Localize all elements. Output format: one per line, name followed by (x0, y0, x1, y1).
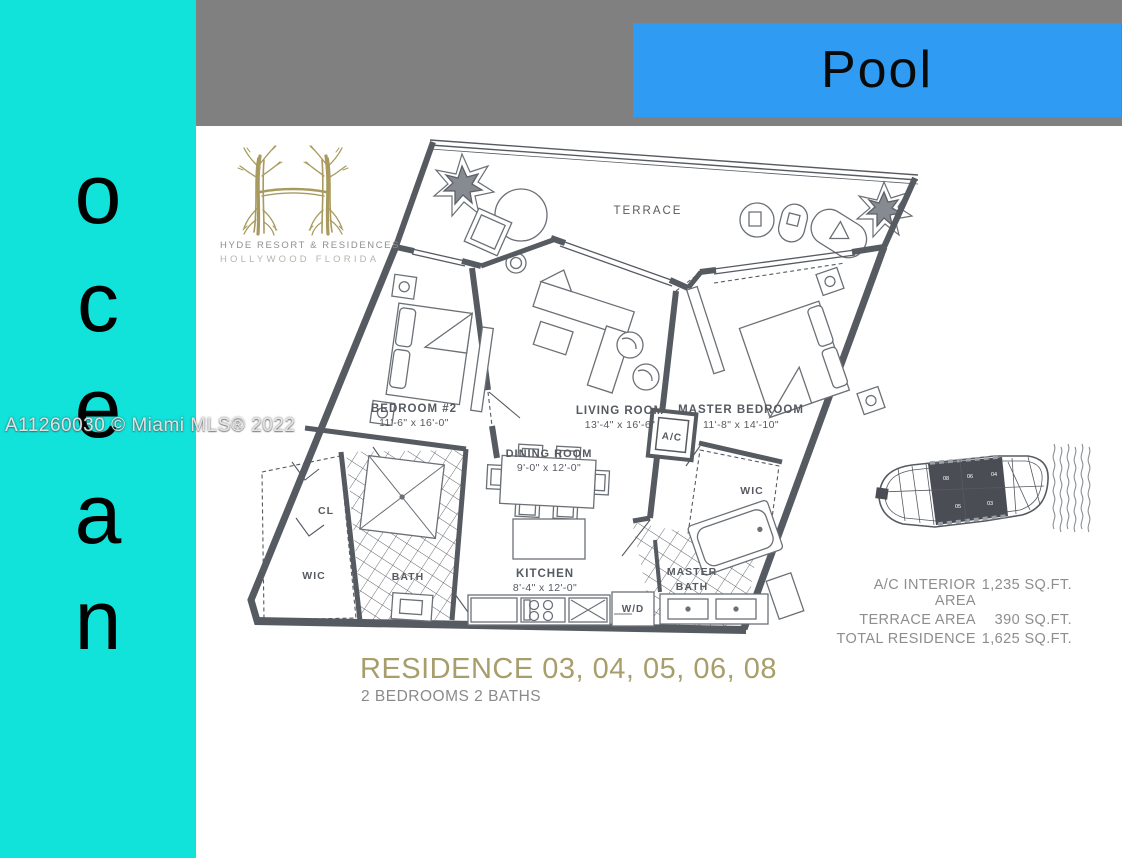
terrace-stool-inner (511, 258, 522, 269)
nightstand-1 (392, 274, 417, 299)
label-master-bath-2: BATH (676, 581, 708, 593)
residence-subtitle: 2 BEDROOMS 2 BATHS (361, 688, 541, 706)
hyde-brand-text: HYDE RESORT & RESIDENCES (220, 240, 370, 251)
label-ac: A/C (661, 431, 682, 444)
area-label: TERRACE AREA (836, 612, 976, 628)
round-chair-1 (617, 332, 643, 358)
coffee-table (533, 321, 573, 354)
key-plan: 08 06 04 05 03 (875, 444, 1090, 532)
label-living: LIVING ROOM (576, 405, 664, 417)
key-plan-highlight (928, 457, 1008, 525)
label-master-bedroom: MASTER BEDROOM (678, 404, 804, 416)
hyde-tree-h-icon (220, 138, 370, 238)
svg-text:05: 05 (955, 504, 961, 510)
pool-header-bar: Pool (196, 0, 1122, 126)
bedroom2-window (412, 249, 465, 266)
area-value: 390 SQ.FT. (976, 612, 1072, 628)
dims-living: 13'-4" x 16'-6" (585, 419, 656, 431)
living-window (560, 241, 674, 286)
pool-label: Pool (821, 40, 933, 100)
toilet (766, 573, 804, 619)
ocean-letter-e: e (0, 366, 196, 450)
residence-title: RESIDENCE 03, 04, 05, 06, 08 (360, 653, 777, 686)
label-wic-left: WIC (302, 570, 325, 582)
bath-strip-top-wall (305, 428, 466, 449)
ocean-letter-c: c (0, 260, 196, 344)
master-console (687, 287, 725, 374)
dims-bedroom2: 11'-6" x 16'-0" (379, 417, 449, 429)
railing-line-1 (430, 140, 918, 175)
ocean-waves-icon (1053, 444, 1090, 532)
railing-line-3 (430, 149, 918, 184)
svg-text:04: 04 (991, 472, 997, 478)
svg-text:08: 08 (943, 476, 949, 482)
plant-star-left-icon (434, 154, 494, 216)
pool-label-box: Pool (633, 23, 1121, 117)
dims-kitchen: 8'-4" x 12'-0" (513, 582, 577, 594)
kitchen-island (513, 519, 585, 559)
label-wd: W/D (622, 604, 644, 615)
label-bath: BATH (392, 571, 424, 583)
door-bedroom2 (489, 392, 520, 418)
door-wic-left (296, 518, 324, 536)
area-table: A/C INTERIOR AREA 1,235 SQ.FT. TERRACE A… (836, 577, 1072, 650)
mls-floorplan-image: { "sidebar": { "word": "ocean", "letters… (0, 0, 1122, 858)
bath-vanity (391, 593, 433, 622)
label-terrace: TERRACE (614, 205, 683, 217)
round-chair-2 (633, 364, 659, 390)
opening-dashed (488, 392, 492, 426)
area-value: 1,235 SQ.FT. (976, 577, 1072, 609)
master-furniture (731, 267, 885, 443)
dims-master-bedroom: 11'-8" x 14'-10" (703, 419, 779, 431)
master-nightstand-2 (857, 387, 885, 415)
master-nightstand-1 (816, 267, 844, 295)
lounge-chair-2 (776, 201, 810, 244)
area-row: A/C INTERIOR AREA 1,235 SQ.FT. (836, 577, 1072, 609)
svg-text:06: 06 (967, 474, 973, 480)
fridge (471, 598, 517, 622)
hyde-location-text: HOLLYWOOD FLORIDA (220, 254, 370, 265)
area-value: 1,625 SQ.FT. (976, 631, 1072, 647)
bedroom2-console (471, 327, 494, 412)
label-kitchen: KITCHEN (516, 568, 574, 580)
label-wic-master: WIC (740, 485, 763, 497)
ocean-letter-o: o (0, 152, 196, 236)
mls-watermark: A11260030 © Miami MLS® 2022 (5, 415, 295, 437)
area-label: A/C INTERIOR AREA (836, 577, 976, 609)
lounge-chair-1 (740, 203, 774, 237)
ocean-letter-a: a (0, 472, 196, 556)
label-dining: DINING ROOM (506, 448, 593, 460)
area-row: TOTAL RESIDENCE 1,625 SQ.FT. (836, 631, 1072, 647)
terrace-left-wall (396, 142, 433, 246)
railing-line-2 (430, 145, 918, 180)
ocean-letter-n: n (0, 578, 196, 662)
key-plan-core (875, 487, 888, 500)
area-row: TERRACE AREA 390 SQ.FT. (836, 612, 1072, 628)
svg-text:03: 03 (987, 501, 993, 507)
label-cl: CL (318, 505, 334, 517)
area-label: TOTAL RESIDENCE (836, 631, 976, 647)
label-master-bath-1: MASTER (667, 566, 717, 578)
label-bedroom2: BEDROOM #2 (371, 403, 457, 415)
stove (521, 598, 565, 622)
hyde-logo: HYDE RESORT & RESIDENCES HOLLYWOOD FLORI… (220, 138, 370, 270)
wic-master-top-wall (699, 443, 782, 462)
dims-dining: 9'-0" x 12'-0" (517, 462, 581, 474)
